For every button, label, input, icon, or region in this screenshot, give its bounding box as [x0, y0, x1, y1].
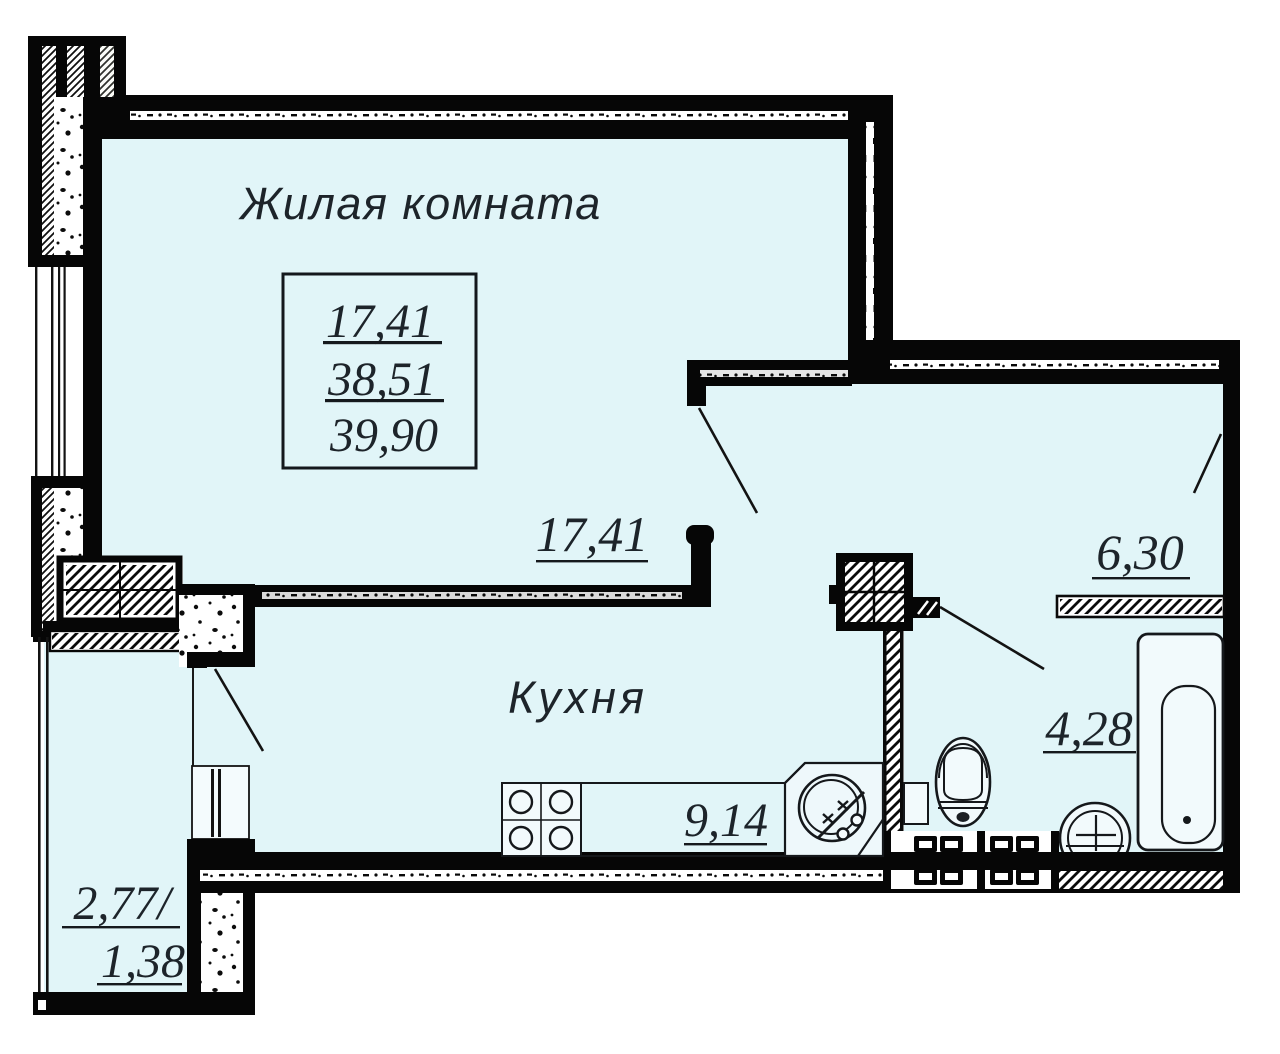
svg-text:17,41: 17,41 — [536, 506, 649, 562]
svg-text:Жилая комната: Жилая комната — [238, 178, 602, 229]
svg-text:1,38: 1,38 — [101, 935, 185, 988]
svg-text:4,28: 4,28 — [1045, 700, 1133, 756]
svg-text:38,51: 38,51 — [327, 353, 436, 406]
svg-text:39,90: 39,90 — [329, 409, 438, 462]
svg-text:2,77/: 2,77/ — [73, 877, 174, 930]
svg-text:17,41: 17,41 — [326, 295, 434, 348]
svg-text:Кухня: Кухня — [508, 672, 648, 723]
svg-text:6,30: 6,30 — [1096, 524, 1184, 580]
svg-text:9,14: 9,14 — [684, 794, 768, 847]
